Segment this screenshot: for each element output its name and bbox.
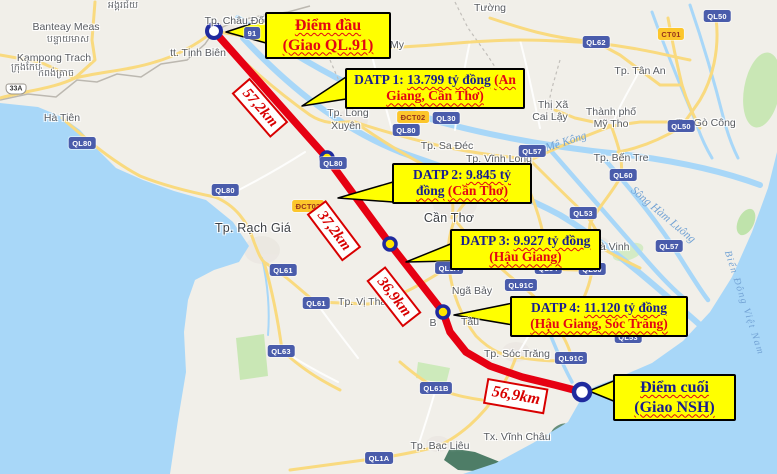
callout-datp1: DATP 1: 13.799 tỷ đồng (An Giang, Cần Th… <box>345 68 525 109</box>
start-point-subtitle: (Giao QL.91) <box>273 36 383 56</box>
segment-marker-3 <box>384 238 396 250</box>
end-point-title: Điểm cuối <box>621 378 728 398</box>
datp1-prefix: DATP 1: <box>354 72 404 87</box>
start-marker <box>207 24 221 38</box>
datp2-provinces: (Cần Thơ) <box>448 183 508 198</box>
callout-datp2: DATP 2: 9.845 tỷ đồng (Cần Thơ) <box>392 163 532 204</box>
callout-datp4: DATP 4: 11.120 tỷ đồng (Hậu Giang, Sóc T… <box>510 296 688 337</box>
segment-marker-2 <box>321 152 333 164</box>
datp3-provinces: (Hậu Giang) <box>489 249 561 264</box>
pointer-datp1 <box>302 77 346 106</box>
callout-start-point: Điểm đầu (Giao QL.91) <box>265 12 391 59</box>
map-canvas[interactable]: tt. Tịnh BiênTp. Châu ĐốcTp. LongXuyênTp… <box>0 0 777 474</box>
datp4-provinces: (Hậu Giang, Sóc Trăng) <box>530 316 668 331</box>
datp4-prefix: DATP 4: <box>531 300 581 315</box>
segment-marker-4 <box>437 306 449 318</box>
pointer-datp3 <box>406 243 453 262</box>
datp3-prefix: DATP 3: <box>461 233 511 248</box>
end-marker <box>574 384 590 400</box>
datp2-prefix: DATP 2: <box>413 167 463 182</box>
end-point-subtitle: (Giao NSH) <box>621 398 728 418</box>
callout-datp3: DATP 3: 9.927 tỷ đồng (Hậu Giang) <box>450 229 601 270</box>
pointer-datp4 <box>454 303 513 325</box>
callout-end-point: Điểm cuối (Giao NSH) <box>613 374 736 421</box>
start-point-title: Điểm đầu <box>273 16 383 36</box>
datp4-cost: 11.120 tỷ đồng <box>584 300 667 315</box>
datp1-cost: 13.799 tỷ đồng <box>407 72 491 87</box>
datp3-cost: 9.927 tỷ đồng <box>514 233 591 248</box>
